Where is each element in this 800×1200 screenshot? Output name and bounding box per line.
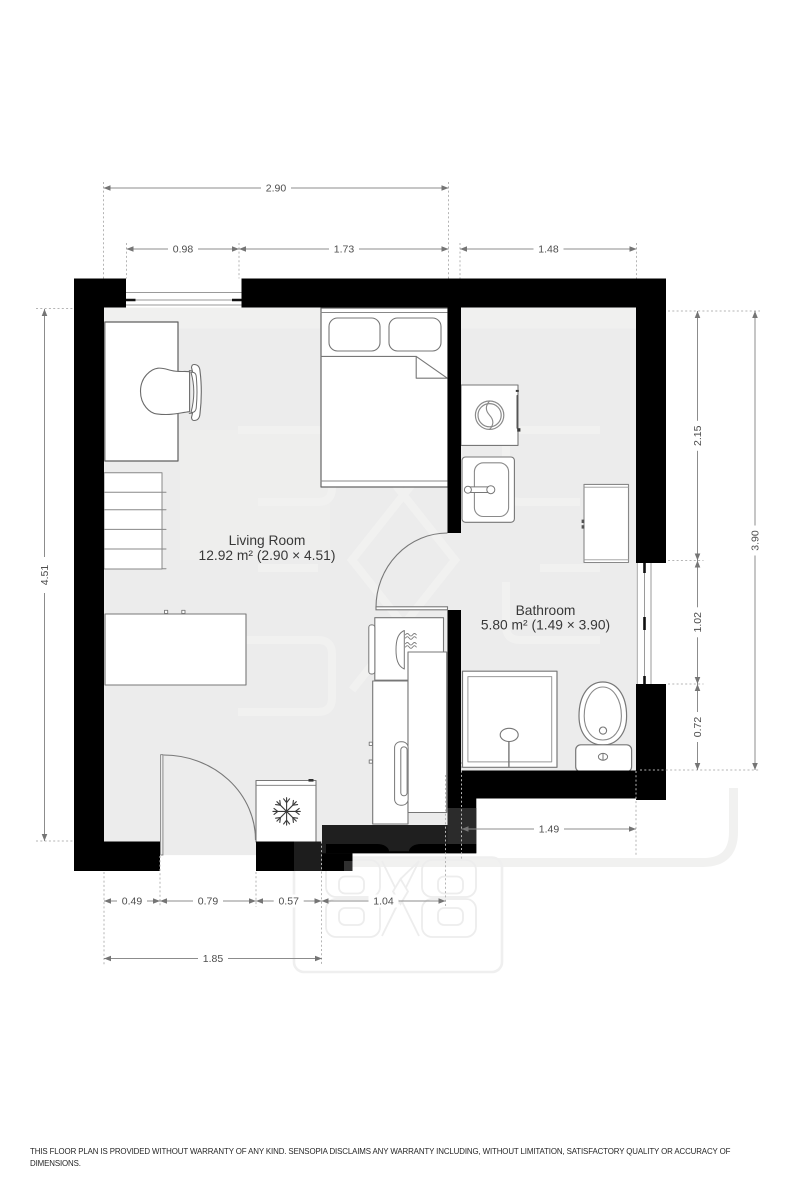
svg-text:DIMENSIONS.: DIMENSIONS. [30, 1159, 81, 1168]
svg-text:0.49: 0.49 [122, 896, 143, 908]
svg-text:1.02: 1.02 [692, 612, 704, 633]
svg-text:0.98: 0.98 [173, 244, 194, 256]
svg-text:2.90: 2.90 [266, 183, 287, 195]
svg-text:0.72: 0.72 [692, 717, 704, 738]
svg-text:1.73: 1.73 [334, 244, 355, 256]
svg-text:5.80 m² (1.49 × 3.90): 5.80 m² (1.49 × 3.90) [481, 618, 610, 633]
svg-text:3.90: 3.90 [750, 530, 762, 551]
svg-text:THIS FLOOR PLAN IS PROVIDED WI: THIS FLOOR PLAN IS PROVIDED WITHOUT WARR… [30, 1147, 731, 1156]
svg-text:0.57: 0.57 [278, 896, 299, 908]
svg-text:2.15: 2.15 [692, 425, 704, 446]
svg-text:1.49: 1.49 [539, 824, 560, 836]
svg-text:0.79: 0.79 [198, 896, 219, 908]
svg-text:Bathroom: Bathroom [516, 603, 576, 618]
svg-text:12.92 m² (2.90 × 4.51): 12.92 m² (2.90 × 4.51) [199, 548, 336, 563]
svg-text:1.48: 1.48 [538, 244, 559, 256]
svg-text:4.51: 4.51 [39, 565, 51, 586]
svg-text:1.85: 1.85 [203, 953, 224, 965]
svg-text:1.04: 1.04 [373, 896, 394, 908]
svg-text:Living Room: Living Room [229, 533, 306, 548]
